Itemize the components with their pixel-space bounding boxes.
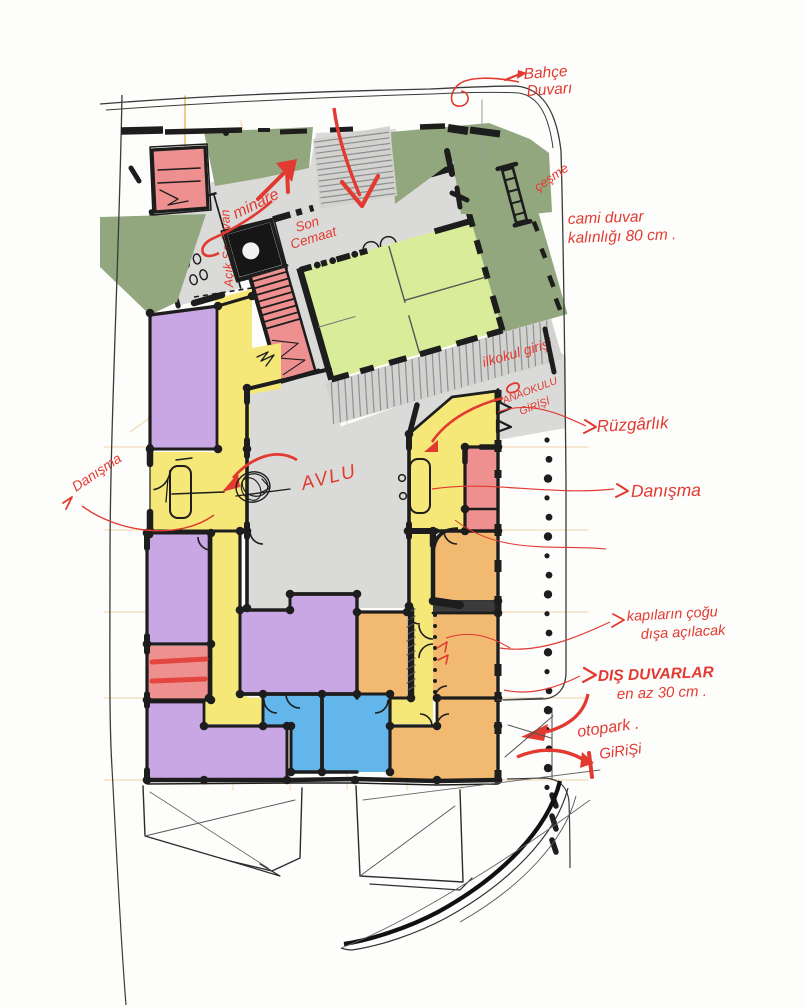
svg-text:Rüzgârlık: Rüzgârlık <box>596 413 670 436</box>
svg-text:en az 30 cm .: en az 30 cm . <box>617 683 708 703</box>
svg-text:Danışma: Danışma <box>631 480 702 501</box>
svg-text:Duvarı: Duvarı <box>526 80 573 100</box>
svg-text:cami duvar: cami duvar <box>568 208 645 228</box>
